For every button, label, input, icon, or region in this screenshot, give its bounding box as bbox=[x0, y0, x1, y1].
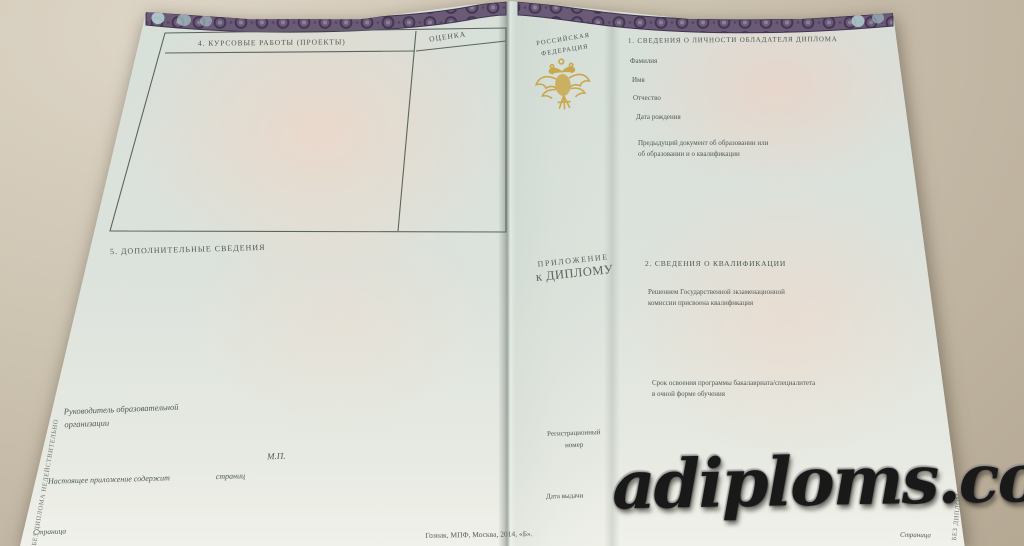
section2-title: 2. СВЕДЕНИЯ О КВАЛИФИКАЦИИ bbox=[645, 259, 786, 268]
previous-document-label: Предыдущий документ об образовании или о… bbox=[638, 138, 768, 160]
registration-number-label: Регистрационный номер bbox=[528, 426, 621, 453]
surname-field-label: Фамилия bbox=[630, 57, 657, 65]
program-duration-label: Срок освоения программы бакалавриата/спе… bbox=[652, 378, 815, 400]
section5-title: 5. ДОПОЛНИТЕЛЬНЫЕ СВЕДЕНИЯ bbox=[110, 243, 266, 256]
firstname-field-label: Имя bbox=[632, 76, 645, 84]
head-label-line2: организации bbox=[64, 415, 179, 430]
qualification-decision-label: Решением Государственной экзаменационной… bbox=[648, 287, 785, 309]
pages-contained-line: Настоящее приложение содержит страниц bbox=[48, 471, 245, 486]
issue-date-label: Дата выдачи bbox=[546, 492, 584, 501]
seal-placeholder-label: М.П. bbox=[267, 451, 286, 462]
watermark-text: adiploms.com bbox=[611, 437, 1024, 525]
prev-doc-line1: Предыдущий документ об образовании или bbox=[638, 138, 768, 149]
decision-line2: комиссии присвоена квалификация bbox=[648, 298, 785, 309]
decision-line1: Решением Государственной экзаменационной bbox=[648, 287, 785, 298]
duration-line1: Срок освоения программы бакалавриата/спе… bbox=[652, 378, 815, 389]
head-label-line1: Руководитель образовательной bbox=[64, 402, 179, 417]
head-of-organization-label: Руководитель образовательной организации bbox=[64, 402, 180, 430]
pages-word-label: страниц bbox=[216, 471, 246, 481]
edge-note-left: БЕЗ ДИПЛОМА НЕДЕЙСТВИТЕЛЬНО bbox=[31, 387, 66, 546]
duration-line2: в очной форме обучения bbox=[652, 389, 815, 400]
birthdate-field-label: Дата рождения bbox=[636, 113, 681, 121]
contains-label: Настоящее приложение содержит bbox=[48, 473, 170, 485]
grade-column-header: ОЦЕНКА bbox=[429, 29, 467, 43]
page-label-right: Страница bbox=[900, 531, 931, 540]
coursework-table-title: 4. КУРСОВЫЕ РАБОТЫ (ПРОЕКТЫ) bbox=[198, 37, 346, 48]
patronymic-field-label: Отчество bbox=[633, 94, 661, 102]
section1-title: 1. СВЕДЕНИЯ О ЛИЧНОСТИ ОБЛАДАТЕЛЯ ДИПЛОМ… bbox=[628, 35, 838, 45]
prev-doc-line2: об образовании и о квалификации bbox=[638, 149, 768, 160]
